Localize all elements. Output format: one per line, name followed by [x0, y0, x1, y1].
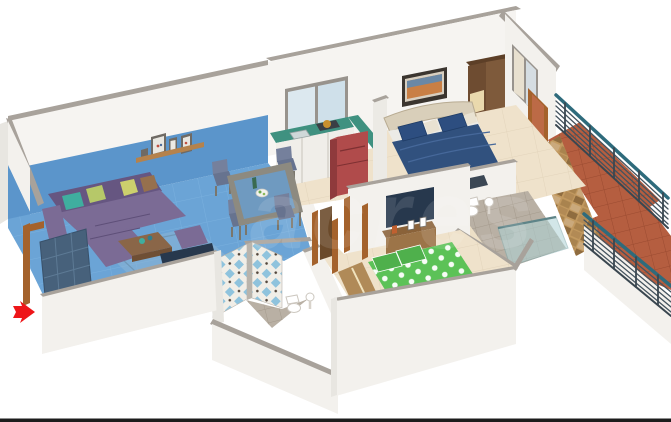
vase — [139, 238, 145, 244]
washbasin — [306, 293, 314, 301]
entrance-frame-post — [23, 223, 30, 306]
wall-corner-edge — [331, 297, 337, 397]
watermark-text: acres — [250, 162, 541, 269]
photo-figure — [157, 145, 160, 148]
bottom-rule — [0, 419, 671, 422]
cooking-pan — [323, 120, 331, 128]
vase — [148, 236, 153, 241]
outer-wall-edge — [0, 121, 8, 224]
toilet-tank — [286, 295, 299, 304]
photo-figure — [185, 142, 188, 145]
floorplan-stage: acres — [0, 0, 671, 422]
toilet-bowl — [288, 304, 301, 313]
floorplan-render: acres — [0, 0, 671, 422]
photo-figure — [160, 144, 162, 146]
